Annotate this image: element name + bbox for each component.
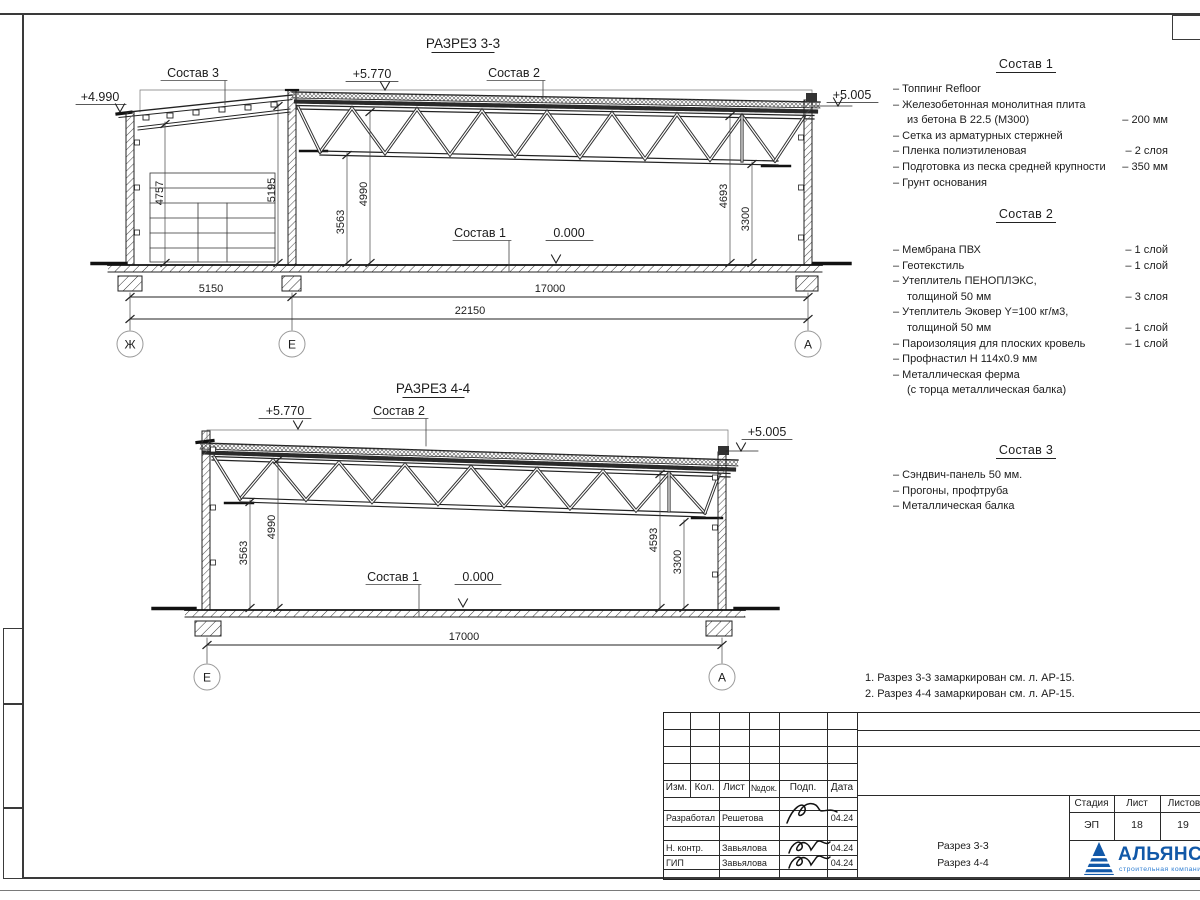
list-item: – Сетка из арматурных стержней (880, 129, 1172, 145)
paper-edge-line (0, 890, 1200, 891)
composition-2-title: Состав 2 (996, 207, 1056, 223)
list-item: – Пленка полиэтиленовая– 2 слоя (880, 144, 1172, 160)
tb-doc-title-1: Разрез 3-3 (857, 840, 1069, 852)
label-sostav1-44: Состав 1 (367, 570, 419, 584)
dim-3563: 3563 (335, 210, 347, 234)
tb-role-gip: ГИП (666, 858, 684, 868)
note-2: 2. Разрез 4-4 замаркирован см. л. АР-15. (865, 687, 1075, 703)
axis-e: Е (288, 338, 296, 352)
list-item: – Прогоны, профтруба (880, 484, 1172, 500)
signature-1 (787, 804, 837, 823)
axis-zh: Ж (124, 338, 135, 352)
list-item: – Металлическая ферма (880, 368, 1172, 384)
tb-header-list: Лист (719, 782, 749, 793)
sectional-door (150, 173, 275, 262)
list-item: – Металлическая балка (880, 499, 1172, 515)
label-sostav2-33: Состав 2 (488, 66, 540, 80)
elev-0000-33: 0.000 (553, 226, 584, 240)
tb-stage-value: ЭП (1069, 819, 1114, 831)
composition-3-title: Состав 3 (996, 443, 1056, 459)
list-item: – Мембрана ПВХ– 1 слой (880, 243, 1172, 259)
dim-22150: 22150 (455, 305, 486, 317)
notes: 1. Разрез 3-3 замаркирован см. л. АР-15.… (865, 671, 1075, 702)
signatures (779, 795, 857, 878)
tb-stage-header: Стадия (1069, 798, 1114, 809)
dim-4757: 4757 (154, 181, 166, 205)
tb-name-zavyalova-1: Завьялова (722, 843, 767, 853)
label-sostav1-33: Состав 1 (454, 226, 506, 240)
dim-17000-44: 17000 (449, 631, 480, 643)
tb-header-kol: Кол. (690, 782, 719, 793)
tb-sheet-header: Лист (1114, 798, 1160, 809)
tb-sheets-header: Листов (1160, 798, 1200, 809)
alliance-logo-subtitle: строительная компания (1119, 866, 1200, 873)
axis-a: А (804, 338, 812, 352)
tb-sheet-value: 18 (1114, 819, 1160, 831)
list-item: из бетона В 22.5 (М300)– 200 мм (880, 113, 1172, 129)
elev-4990: +4.990 (81, 90, 120, 104)
elev-5005-44: +5.005 (748, 425, 787, 439)
axis-bubbles-44 (194, 664, 735, 690)
tb-doc-title-2: Разрез 4-4 (857, 857, 1069, 869)
side-box-2 (3, 703, 24, 809)
truss-3-3 (298, 107, 804, 166)
elev-5770-44: +5.770 (266, 404, 305, 418)
dim-4693: 4693 (718, 184, 730, 208)
axis-bubbles-33 (117, 331, 821, 357)
list-item: – Утеплитель ПЕНОПЛЭКС, (880, 274, 1172, 290)
alliance-logo-text: АЛЬЯНС (1118, 844, 1200, 866)
dim-3300-44: 3300 (672, 550, 684, 574)
tb-role-razrabotal: Разработал (666, 813, 715, 823)
dim-4990: 4990 (358, 182, 370, 206)
dim-4990-44: 4990 (266, 515, 278, 539)
side-box-3 (3, 807, 24, 879)
frame-top-border (0, 13, 1200, 15)
dim-5150: 5150 (199, 283, 223, 295)
list-item: – Топпинг Refloor (880, 82, 1172, 98)
section-4-4: РАЗРЕЗ 4-4 (153, 381, 792, 690)
tb-name-zavyalova-2: Завьялова (722, 858, 767, 868)
note-1: 1. Разрез 3-3 замаркирован см. л. АР-15. (865, 671, 1075, 687)
list-item: – Профнастил Н 114х0.9 мм (880, 352, 1172, 368)
tb-header-podp: Подп. (779, 782, 827, 793)
elev-5005: +5.005 (833, 88, 872, 102)
list-item: толщиной 50 мм– 1 слой (880, 321, 1172, 337)
list-item: – Железобетонная монолитная плита (880, 98, 1172, 114)
tb-role-nkontr: Н. контр. (666, 843, 703, 853)
section-3-3: 4757 5195 3563 4990 4693 3300 5150 17000… (76, 36, 878, 357)
signature-2 (789, 841, 830, 853)
signature-3 (789, 856, 830, 868)
label-sostav2-44: Состав 2 (373, 404, 425, 418)
list-item: (с торца металлическая балка) (880, 383, 1172, 399)
list-item: – Утеплитель Эковер Y=100 кг/м3, (880, 305, 1172, 321)
list-item: – Пароизоляция для плоских кровель– 1 сл… (880, 337, 1172, 353)
dim-3300: 3300 (740, 207, 752, 231)
list-item: толщиной 50 мм– 3 слоя (880, 290, 1172, 306)
side-box-1 (3, 628, 24, 705)
composition-1: Состав 1 – Топпинг Refloor – Железобетон… (880, 57, 1172, 191)
dim-4593-44: 4593 (648, 528, 660, 552)
dim-5195: 5195 (266, 178, 278, 202)
drawing-sheet: { "s33": { "title": "РАЗРЕЗ 3-3", "sosta… (0, 0, 1200, 900)
tb-sheets-value: 19 (1160, 819, 1200, 831)
composition-1-title: Состав 1 (996, 57, 1056, 73)
tb-header-data: Дата (827, 782, 857, 793)
alliance-logo-icon (1084, 842, 1114, 875)
axis-e-44: Е (203, 671, 211, 685)
list-item: – Подготовка из песка средней крупности–… (880, 160, 1172, 176)
dim-17000: 17000 (535, 283, 566, 295)
purlins-left-bay (143, 102, 277, 120)
composition-2: Состав 2 – Мембрана ПВХ– 1 слой – Геотек… (880, 207, 1172, 399)
title-3-3: РАЗРЕЗ 3-3 (426, 36, 500, 51)
axis-a-44: А (718, 671, 726, 685)
list-item: – Геотекстиль– 1 слой (880, 259, 1172, 275)
list-item: – Грунт основания (880, 176, 1172, 192)
label-sostav3: Состав 3 (167, 66, 219, 80)
title-4-4: РАЗРЕЗ 4-4 (396, 381, 471, 396)
elev-5770: +5.770 (353, 67, 392, 81)
list-item: – Сэндвич-панель 50 мм. (880, 468, 1172, 484)
corner-stamp-box (1172, 15, 1200, 40)
elev-0000-44: 0.000 (462, 570, 493, 584)
tb-header-ndok: №док. (749, 782, 779, 793)
tb-header-izm: Изм. (663, 782, 690, 793)
tb-name-reshetova: Решетова (722, 813, 763, 823)
dim-3563-44: 3563 (238, 541, 250, 565)
composition-3: Состав 3 – Сэндвич-панель 50 мм. – Прого… (880, 443, 1172, 515)
